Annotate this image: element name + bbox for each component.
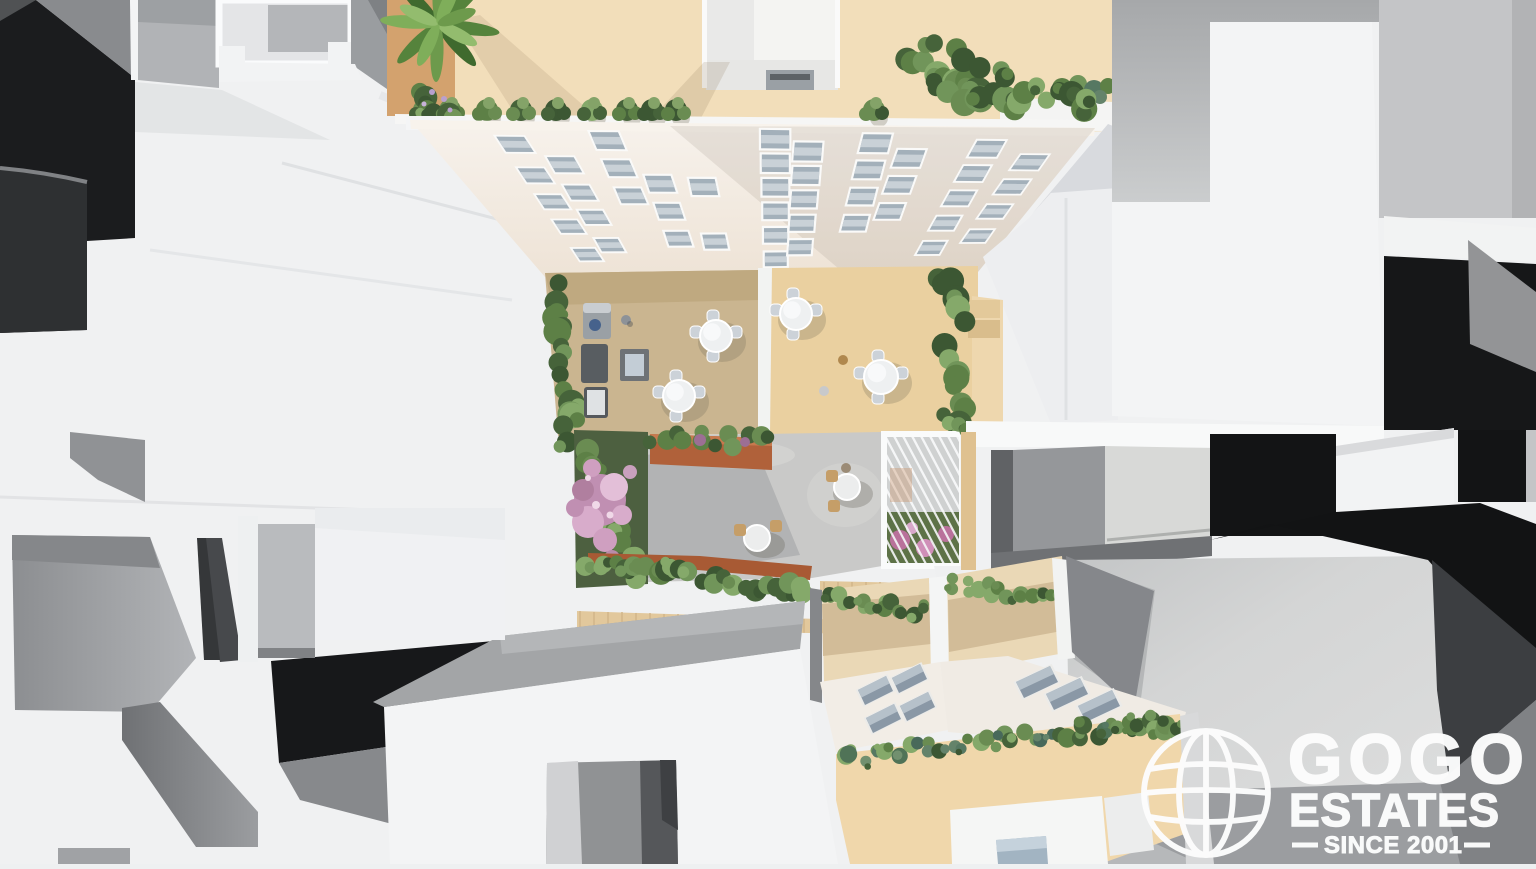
svg-text:ESTATES: ESTATES — [1289, 784, 1500, 836]
svg-text:SINCE 2001: SINCE 2001 — [1324, 832, 1462, 859]
